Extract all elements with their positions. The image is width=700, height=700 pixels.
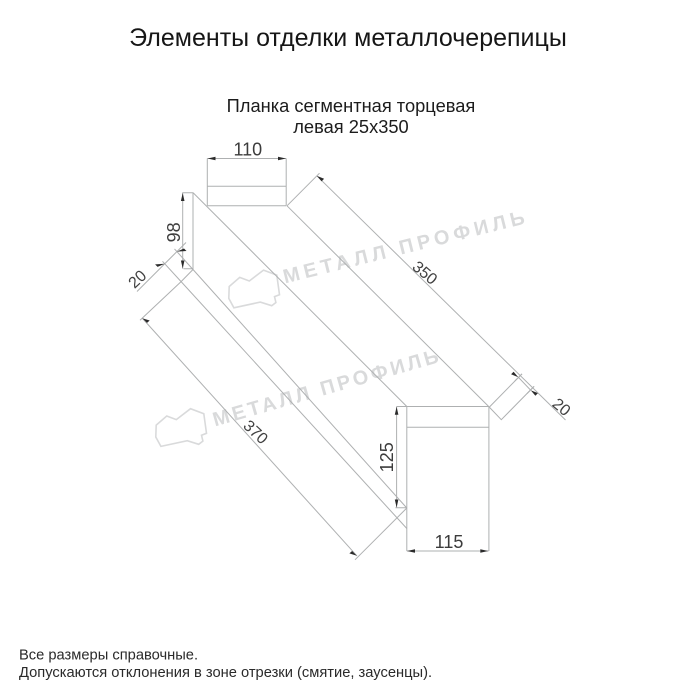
svg-text:115: 115 — [435, 532, 464, 552]
svg-text:Элементы отделки металлочерепи: Элементы отделки металлочерепицы — [129, 24, 567, 52]
svg-text:98: 98 — [164, 222, 184, 242]
svg-text:левая 25х350: левая 25х350 — [293, 116, 408, 137]
svg-text:125: 125 — [377, 442, 397, 472]
svg-text:Планка сегментная торцевая: Планка сегментная торцевая — [227, 95, 476, 116]
svg-text:Допускаются отклонения в зоне: Допускаются отклонения в зоне отрезки (с… — [19, 665, 432, 681]
svg-text:110: 110 — [233, 140, 262, 160]
svg-text:Все размеры справочные.: Все размеры справочные. — [19, 648, 198, 664]
